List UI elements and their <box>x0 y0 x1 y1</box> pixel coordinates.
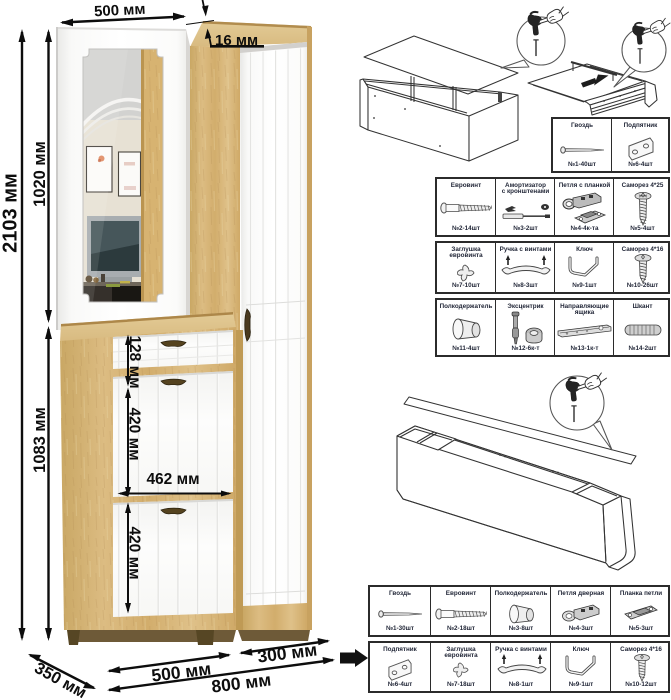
svg-text:1020 мм: 1020 мм <box>31 141 49 207</box>
svg-text:128 мм: 128 мм <box>126 335 143 388</box>
svg-text:2103 мм: 2103 мм <box>0 173 22 253</box>
svg-text:420 мм: 420 мм <box>126 407 143 460</box>
svg-text:500 мм: 500 мм <box>94 1 146 21</box>
svg-text:462 мм: 462 мм <box>146 471 199 488</box>
svg-text:800 мм: 800 мм <box>210 669 272 696</box>
svg-text:420 мм: 420 мм <box>126 526 143 579</box>
svg-text:350 мм: 350 мм <box>31 659 89 700</box>
svg-text:1083 мм: 1083 мм <box>31 407 49 473</box>
svg-text:16 мм: 16 мм <box>215 32 258 49</box>
svg-text:500 мм: 500 мм <box>150 658 212 685</box>
